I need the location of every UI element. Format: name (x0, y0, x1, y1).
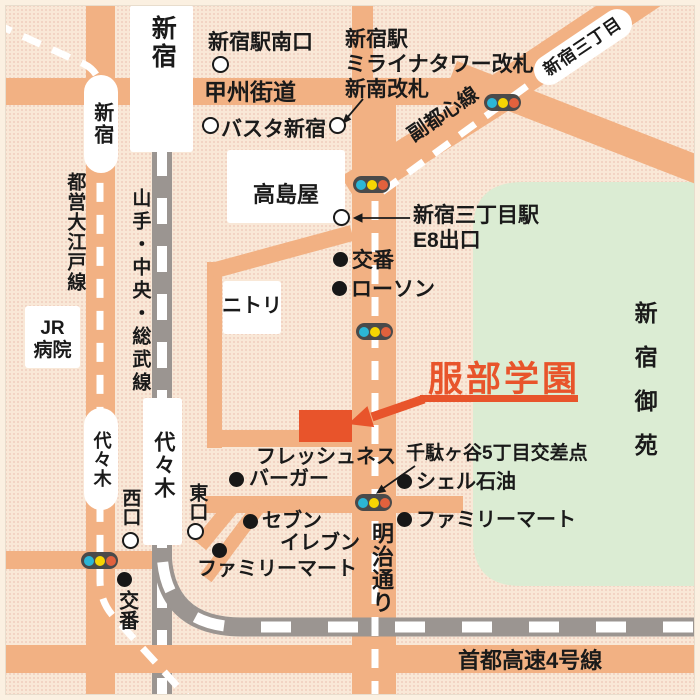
familymart-right-dot (397, 512, 412, 527)
nitori-box: ニトリ (223, 281, 281, 334)
e8-exit-circle (333, 209, 350, 226)
koban-lower-dot (117, 572, 132, 587)
sanchome-station-block: 新宿三丁目駅 E8出口 (413, 204, 539, 254)
miraina-block: 新宿駅 ミライナタワー改札 新南改札 (345, 28, 534, 102)
south-exit-circle (212, 56, 229, 73)
miraina-line3: 新南改札 (345, 78, 534, 103)
familymart-right-label: ファミリーマート (416, 509, 576, 533)
traffic-light-takashimaya (353, 176, 390, 193)
shinjuku-oedo-label: 新宿 (89, 102, 113, 146)
basuta-east-circle (329, 117, 346, 134)
yoyogi-station-label: 代々木 (150, 431, 175, 500)
koban-upper-dot (333, 252, 348, 267)
jr-hospital-line2: 病院 (33, 340, 71, 362)
sendagaya-intersection-label: 千駄ヶ谷5丁目交差点 (406, 443, 588, 465)
jr-hospital-line1: JR (40, 318, 64, 340)
seven-line2-label: イレブン (280, 532, 360, 556)
shinjuku-station-box: 新宿 (130, 5, 193, 152)
yamanote-chuo-sobu-label: 山手・中央・総武線 (128, 188, 150, 395)
nishi-exit-label: 西口 (118, 488, 140, 526)
yoyogi-oedo-pill: 代々木 (84, 408, 118, 510)
sanchome-station-line1: 新宿三丁目駅 (413, 204, 539, 229)
toei-oedo-line-label: 都営大江戸線 (63, 172, 85, 292)
freshness-line1-label: フレッシュネス (256, 446, 396, 470)
lawson-dot (332, 281, 347, 296)
familymart-left-label: ファミリーマート (197, 558, 357, 582)
higashi-exit-label: 東口 (185, 483, 207, 521)
shinjuku-oedo-pill: 新宿 (84, 75, 118, 173)
takashimaya-label: 高島屋 (253, 182, 319, 208)
hattori-gakuen-building (299, 410, 352, 442)
meiji-dori-label: 明治通り (368, 522, 394, 614)
seven-line1-label: セブン (262, 510, 322, 534)
lawson-label: ローソン (351, 278, 435, 303)
familymart-left-dot (212, 543, 227, 558)
traffic-light-yoyogi (81, 552, 118, 569)
koban-lower-label: 交番 (114, 590, 138, 630)
basuta-west-circle (202, 117, 219, 134)
south-exit-label: 新宿駅南口 (208, 31, 313, 56)
koban-upper-label: 交番 (352, 249, 394, 274)
freshness-line2-label: バーガー (249, 468, 329, 492)
nishi-exit-circle (122, 532, 139, 549)
basuta-label: バスタ新宿 (221, 118, 326, 143)
yoyogi-oedo-label: 代々木 (90, 431, 111, 488)
koshu-kaido-label: 甲州街道 (204, 79, 296, 106)
miraina-line2: ミライナタワー改札 (345, 53, 534, 78)
road-takashimaya-diagonal (212, 233, 352, 271)
nitori-label: ニトリ (222, 295, 282, 319)
seven-eleven-dot (243, 514, 258, 529)
freshness-burger-dot (229, 472, 244, 487)
access-map: 新宿 代々木 JR 病院 高島屋 ニトリ 新宿 代々木 新宿三丁目 甲州街 (0, 0, 700, 700)
higashi-exit-circle (187, 523, 204, 540)
sanchome-station-line2: E8出口 (413, 229, 539, 254)
shell-dot (397, 474, 412, 489)
jr-hospital-box: JR 病院 (25, 306, 80, 368)
yoyogi-station-box: 代々木 (143, 398, 182, 545)
shinjuku-station-label: 新宿 (147, 15, 177, 71)
shell-label: シェル石油 (416, 471, 516, 495)
hattori-gakuen-label: 服部学園 (428, 359, 580, 400)
miraina-line1: 新宿駅 (345, 28, 534, 53)
road-narrow-vertical (207, 262, 222, 448)
traffic-light-sendagaya (355, 494, 392, 511)
traffic-light-meiji-mid (356, 323, 393, 340)
shinjuku-gyoen-label: 新宿御苑 (630, 301, 657, 477)
shuto-expressway-label: 首都高速4号線 (458, 648, 602, 674)
takashimaya-box: 高島屋 (227, 150, 345, 223)
